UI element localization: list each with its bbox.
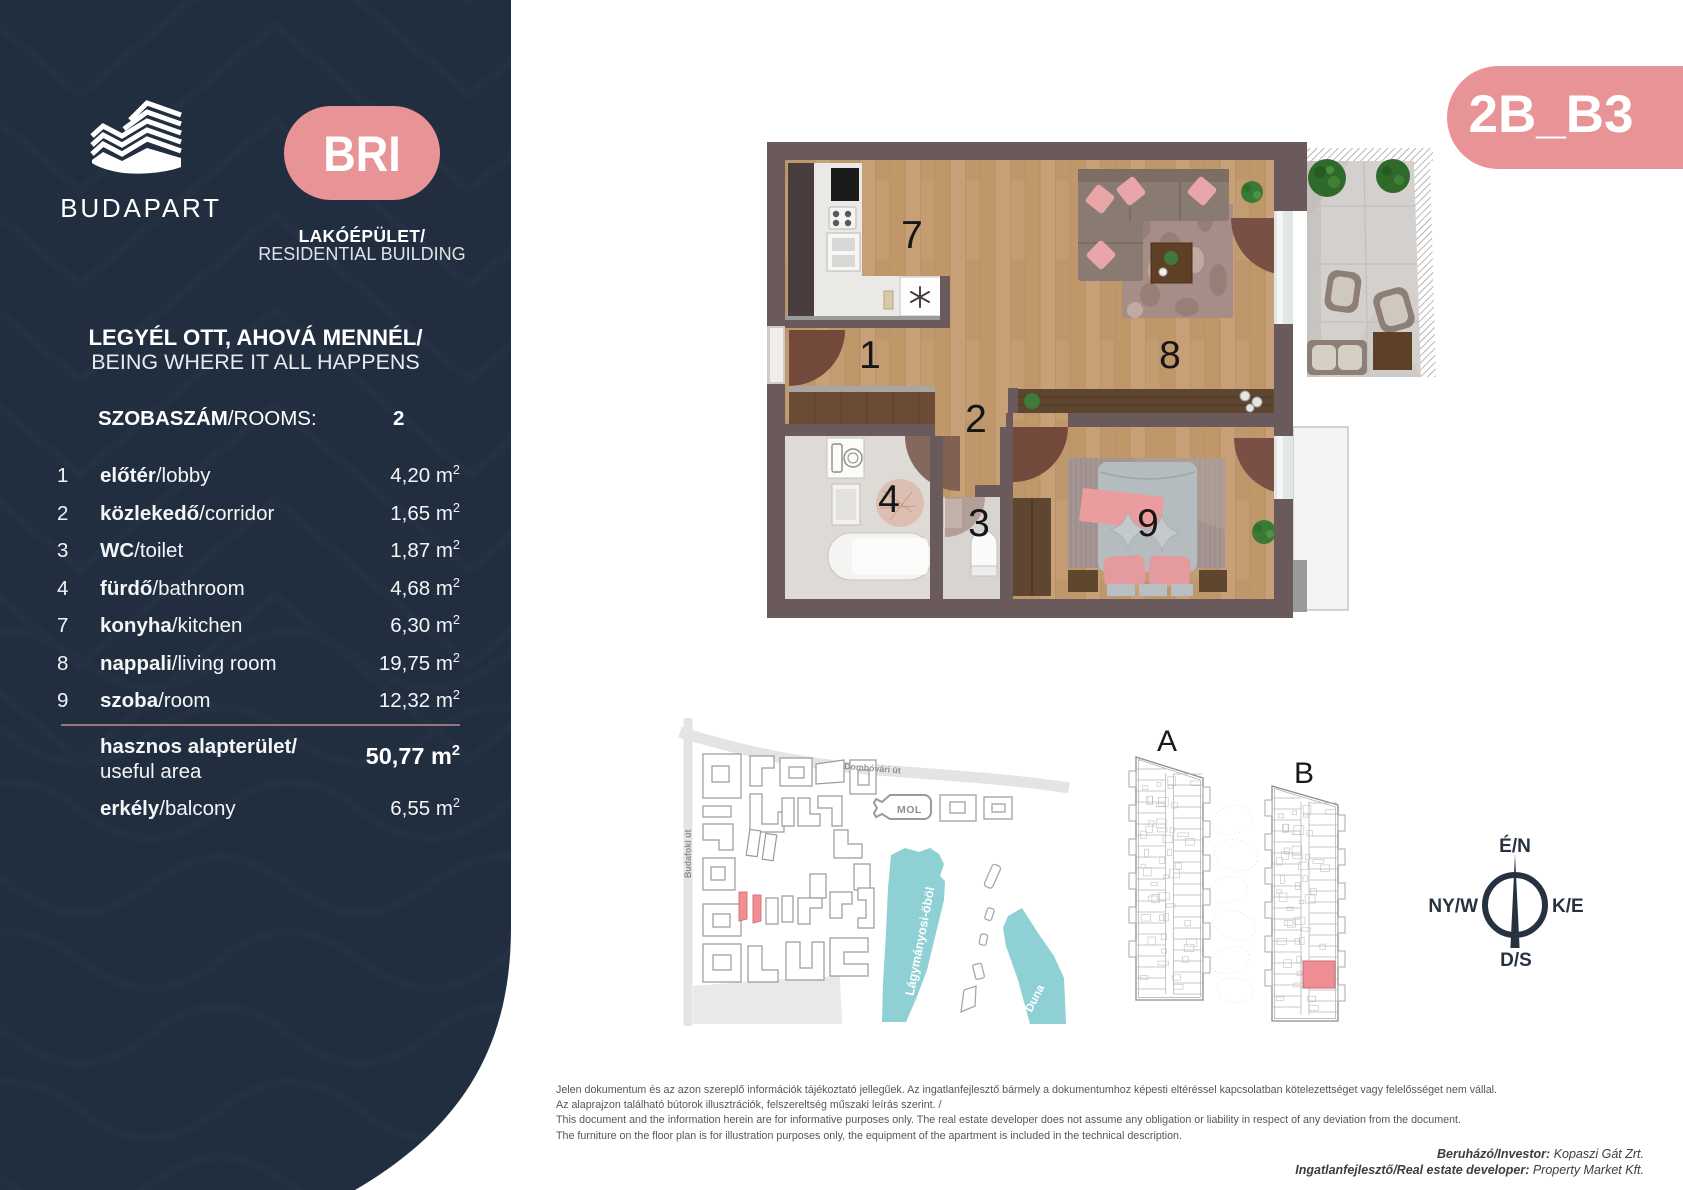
svg-text:3: 3 — [968, 502, 990, 545]
svg-text:A: A — [1157, 725, 1177, 758]
svg-text:B: B — [1294, 757, 1314, 790]
svg-text:MOL: MOL — [897, 804, 922, 816]
svg-text:4: 4 — [878, 478, 900, 521]
svg-text:9: 9 — [1137, 502, 1159, 545]
svg-text:1: 1 — [859, 334, 881, 377]
svg-text:É/N: É/N — [1499, 835, 1531, 857]
svg-text:D/S: D/S — [1500, 950, 1532, 971]
svg-text:8: 8 — [1159, 334, 1181, 377]
svg-text:Budafoki út: Budafoki út — [683, 830, 693, 878]
svg-text:K/E: K/E — [1552, 896, 1584, 917]
svg-text:NY/W: NY/W — [1428, 896, 1478, 917]
svg-text:7: 7 — [901, 214, 923, 257]
svg-text:2: 2 — [965, 398, 987, 441]
